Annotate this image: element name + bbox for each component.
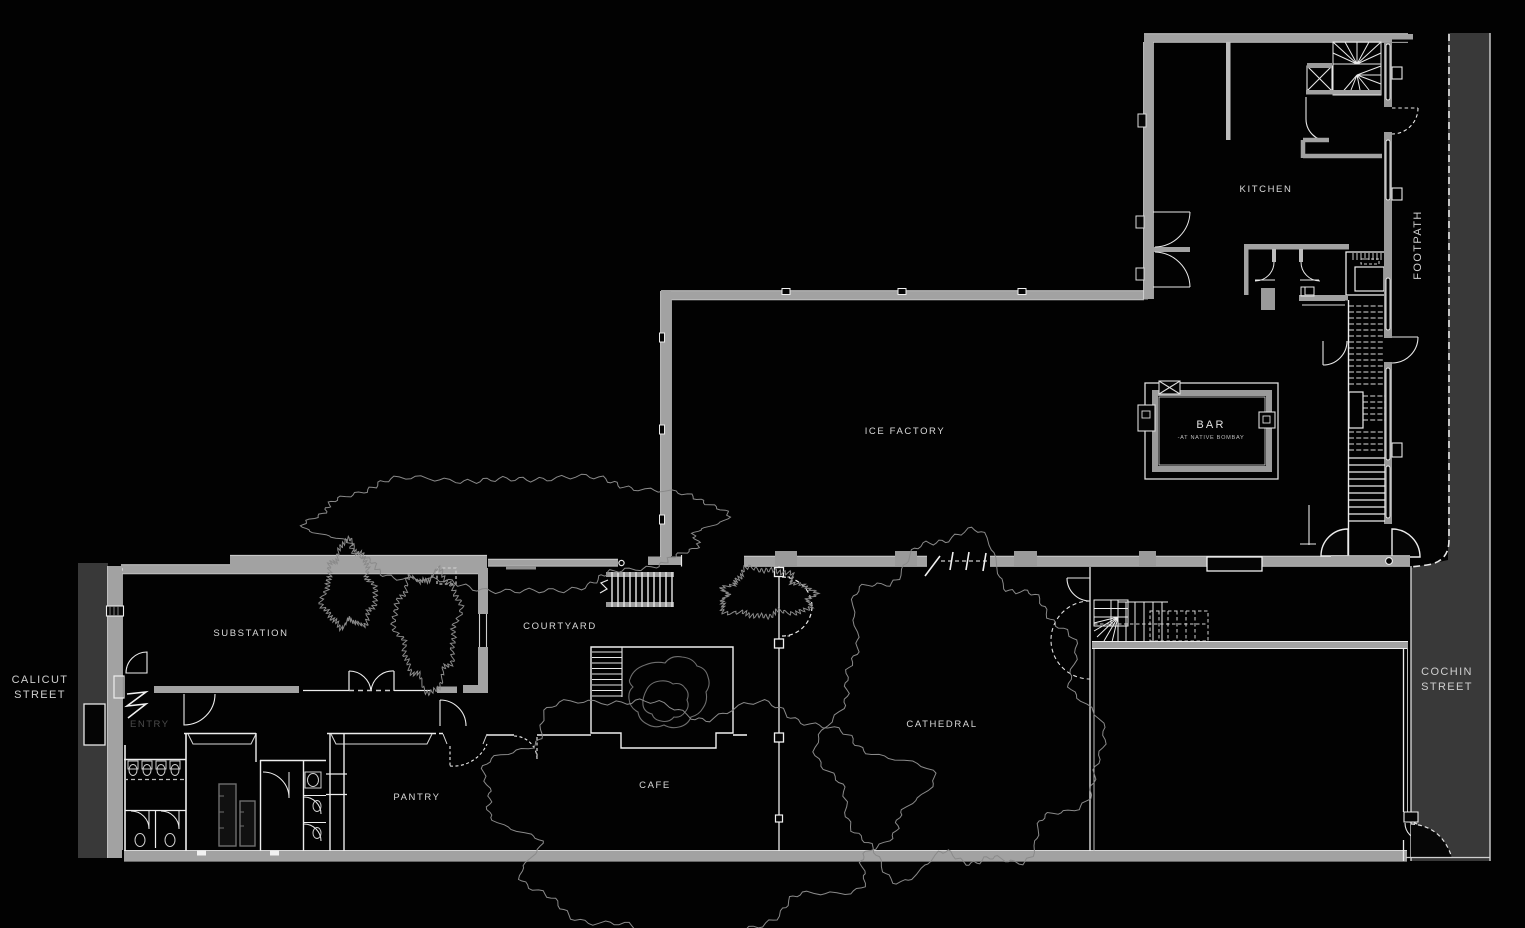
svg-text:KITCHEN: KITCHEN	[1240, 184, 1293, 195]
svg-text:CATHEDRAL: CATHEDRAL	[906, 719, 977, 730]
svg-text:PANTRY: PANTRY	[393, 792, 440, 803]
svg-text:SUBSTATION: SUBSTATION	[213, 628, 288, 639]
svg-text:-AT NATIVE BOMBAY: -AT NATIVE BOMBAY	[1178, 435, 1245, 441]
svg-text:STREET: STREET	[1421, 681, 1473, 693]
svg-text:COCHIN: COCHIN	[1421, 666, 1473, 678]
svg-text:ENTRY: ENTRY	[130, 719, 170, 730]
svg-text:COURTYARD: COURTYARD	[523, 621, 597, 632]
svg-text:CALICUT: CALICUT	[12, 674, 69, 686]
svg-text:FOOTPATH: FOOTPATH	[1412, 210, 1424, 279]
svg-text:BAR: BAR	[1196, 419, 1225, 431]
svg-text:STREET: STREET	[14, 689, 66, 701]
svg-text:ICE FACTORY: ICE FACTORY	[865, 426, 946, 437]
svg-text:CAFE: CAFE	[639, 780, 671, 791]
